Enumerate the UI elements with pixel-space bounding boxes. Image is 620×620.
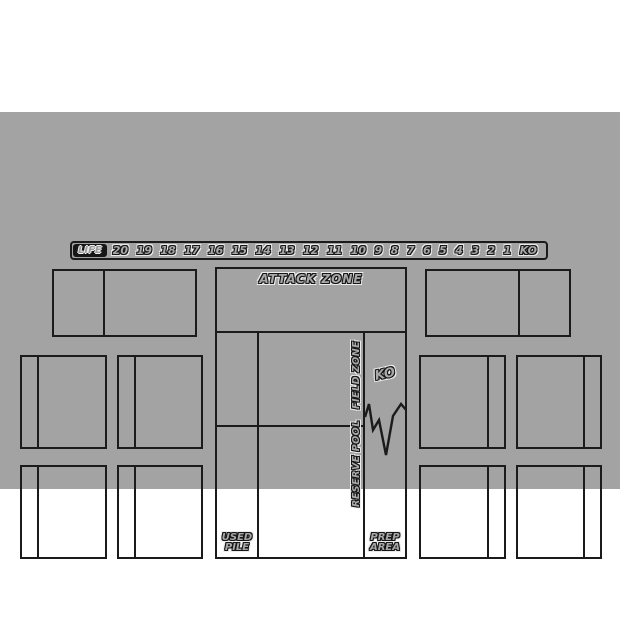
life-value: 12 <box>303 245 318 256</box>
life-value: 15 <box>232 245 247 256</box>
ko-prep-zone: KO PREP AREA <box>365 333 405 557</box>
used-pile-zone: USED PILE <box>217 333 259 557</box>
life-value: 4 <box>455 245 463 256</box>
life-numbers: 2019181716151413121110987654321KO <box>107 245 546 256</box>
life-value: 14 <box>256 245 271 256</box>
life-value: 17 <box>184 245 199 256</box>
life-value: 6 <box>423 245 431 256</box>
slot-strip-line <box>37 467 39 557</box>
attack-zone-label: ATTACK ZONE <box>259 272 362 331</box>
divider-line <box>103 271 105 335</box>
card-slot-left-2 <box>117 355 203 449</box>
card-slot-right-2 <box>516 355 602 449</box>
life-value: 19 <box>137 245 152 256</box>
life-value: 2 <box>488 245 496 256</box>
slot-strip-line <box>487 467 489 557</box>
field-zone-label: FIELD ZONE <box>351 333 362 417</box>
life-value: 1 <box>504 245 512 256</box>
life-value: 18 <box>160 245 175 256</box>
reserve-pool-label: RESERVE POOL <box>351 429 362 507</box>
life-label-badge: LIFE <box>73 244 107 257</box>
card-slot-right-1 <box>419 355 506 449</box>
divider-line <box>518 271 520 335</box>
deck-zone-top-left <box>52 269 197 337</box>
life-track: LIFE 2019181716151413121110987654321KO <box>70 241 548 260</box>
card-slot-right-3 <box>419 465 506 559</box>
life-value: 8 <box>391 245 399 256</box>
card-slot-left-1 <box>20 355 107 449</box>
life-value: 11 <box>327 245 342 256</box>
ko-burst-icon <box>365 400 407 460</box>
life-value: 9 <box>375 245 383 256</box>
attack-zone: ATTACK ZONE <box>217 269 405 333</box>
life-label: LIFE <box>78 244 102 257</box>
slot-strip-line <box>487 357 489 447</box>
life-value: 5 <box>439 245 447 256</box>
slot-strip-line <box>134 467 136 557</box>
life-value: 16 <box>208 245 223 256</box>
life-value: 20 <box>113 245 128 256</box>
life-value: KO <box>520 245 537 256</box>
life-value: 3 <box>471 245 479 256</box>
life-value: 13 <box>279 245 294 256</box>
prep-area-label: PREP AREA <box>365 533 405 553</box>
center-panel-body: USED PILE FIELD ZONE RESERVE POOL KO PRE… <box>217 333 405 557</box>
card-slot-right-4 <box>516 465 602 559</box>
slot-strip-line <box>583 357 585 447</box>
center-panel: ATTACK ZONE USED PILE FIELD ZONE RESERVE… <box>215 267 407 559</box>
slot-strip-line <box>37 357 39 447</box>
deck-zone-top-right <box>425 269 571 337</box>
slot-strip-line <box>583 467 585 557</box>
ko-label: KO <box>364 363 406 386</box>
life-value: 10 <box>351 245 366 256</box>
playmat: LIFE 2019181716151413121110987654321KO <box>0 112 620 489</box>
field-reserve-zone: FIELD ZONE RESERVE POOL <box>259 333 365 557</box>
card-slot-left-3 <box>20 465 107 559</box>
life-value: 7 <box>407 245 415 256</box>
used-pile-label: USED PILE <box>217 533 257 553</box>
playmat-page: LIFE 2019181716151413121110987654321KO <box>0 0 620 620</box>
slot-strip-line <box>134 357 136 447</box>
card-slot-left-4 <box>117 465 203 559</box>
